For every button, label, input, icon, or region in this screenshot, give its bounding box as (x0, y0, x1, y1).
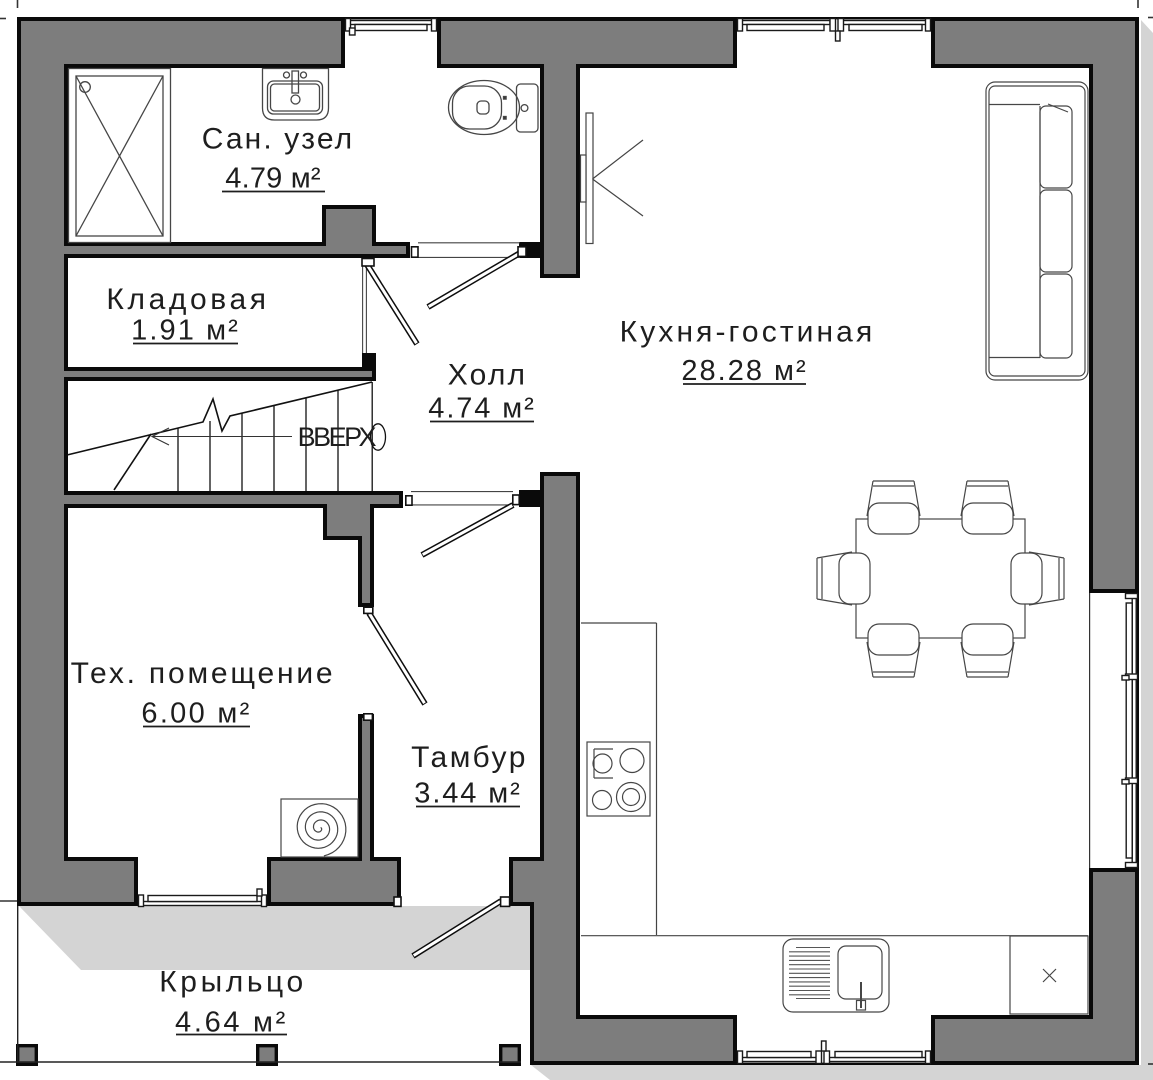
svg-text:4.74 м²: 4.74 м² (428, 393, 535, 425)
svg-text:Крыльцо: Крыльцо (159, 966, 307, 999)
svg-text:Тех. помещение: Тех. помещение (71, 657, 336, 690)
svg-text:Тамбур: Тамбур (411, 741, 528, 774)
svg-text:28.28 м²: 28.28 м² (681, 355, 807, 387)
svg-text:1.91 м²: 1.91 м² (131, 315, 240, 347)
svg-text:Холл: Холл (448, 359, 528, 392)
svg-text:4.79 м²: 4.79 м² (225, 163, 321, 195)
svg-text:3.44 м²: 3.44 м² (414, 778, 521, 810)
svg-text:Кладовая: Кладовая (106, 283, 269, 316)
svg-text:Кухня-гостиная: Кухня-гостиная (620, 316, 876, 349)
svg-text:Сан. узел: Сан. узел (202, 123, 354, 156)
svg-text:ВВЕРХ: ВВЕРХ (298, 422, 377, 452)
svg-text:6.00 м²: 6.00 м² (141, 698, 251, 730)
